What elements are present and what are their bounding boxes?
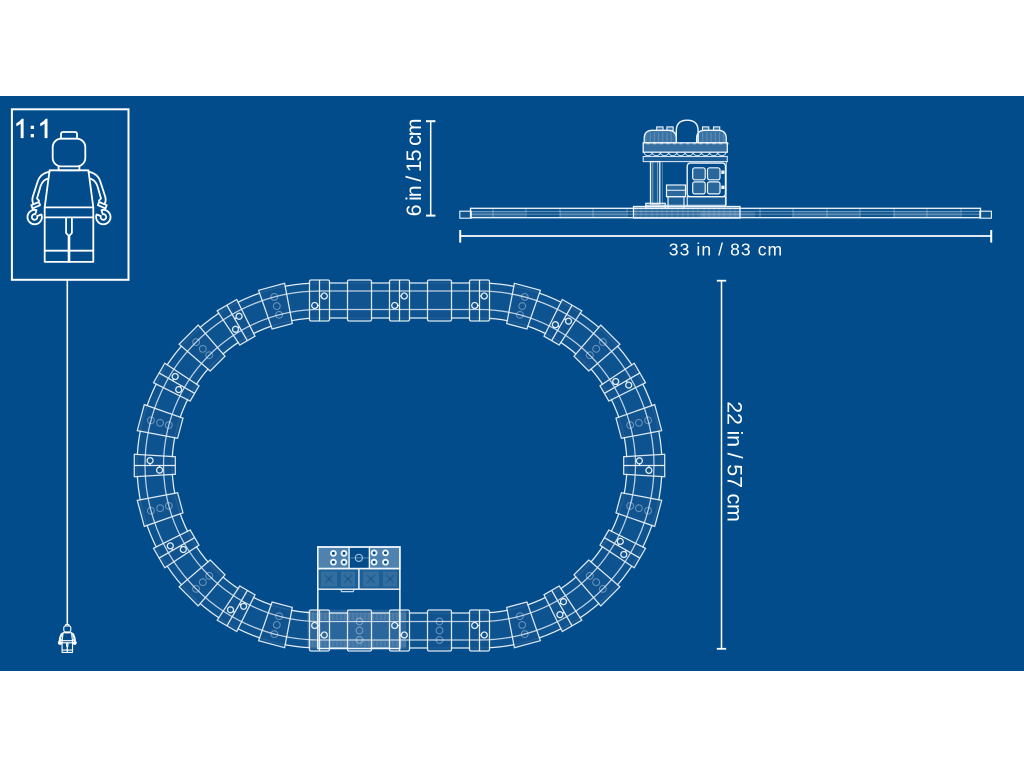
svg-text:33 in / 83 cm: 33 in / 83 cm <box>669 240 784 260</box>
svg-text:22 in / 57 cm: 22 in / 57 cm <box>723 401 747 522</box>
svg-text:6 in / 15 cm: 6 in / 15 cm <box>402 119 426 216</box>
